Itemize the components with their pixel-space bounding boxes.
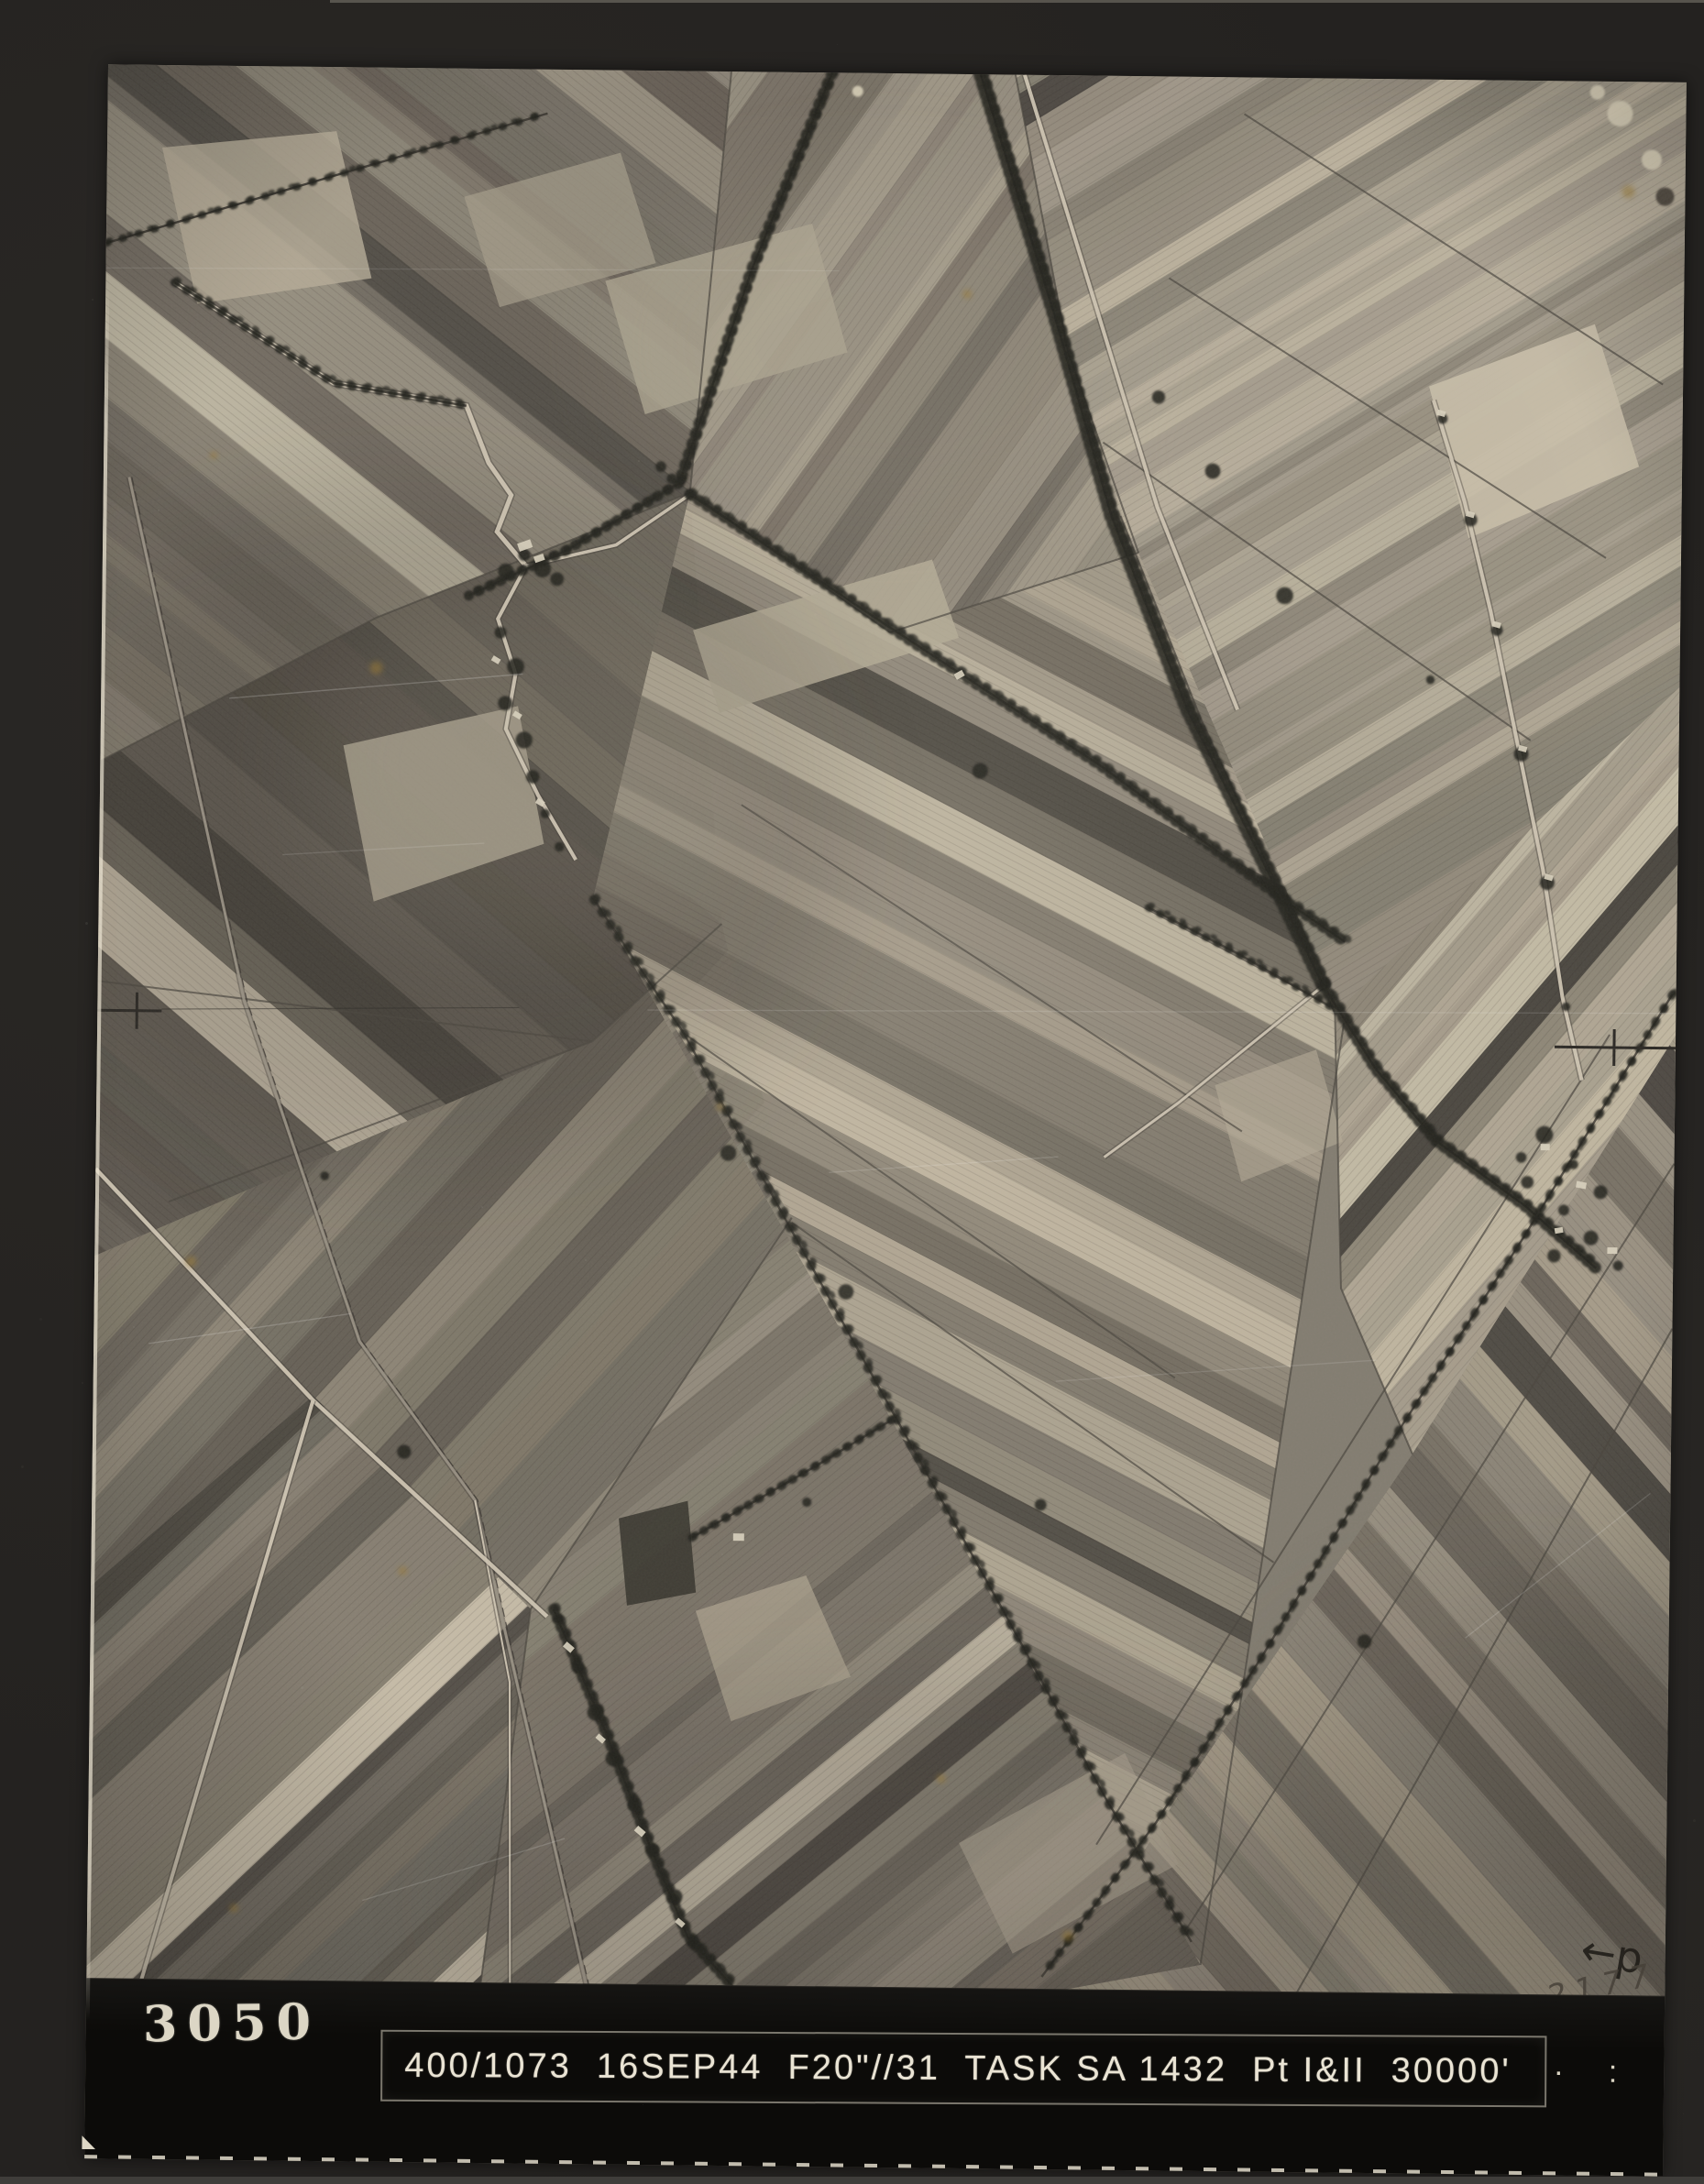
caption-stamp-box: 400/1073 16SEP44 F20"//31 TASK SA 1432 P… [380,2030,1546,2108]
dust-speck [1622,555,1624,557]
dust-speck [1693,1819,1696,1822]
dust-speck [481,1206,483,1208]
dust-speck [929,1192,930,1194]
caption-stamp-marks: · : [1554,2054,1627,2090]
dust-speck [85,922,88,925]
dust-speck [398,1171,401,1174]
dust-speck [837,44,838,45]
dust-speck [360,702,362,704]
caption-strip: 3050 400/1073 16SEP44 F20"//31 TASK SA 1… [84,1978,1665,2177]
scan-background: ←p 2177 3050 400/1073 16SEP44 F20"//31 T… [0,0,1704,2184]
dust-speck [910,1504,913,1507]
photo-serial-number: 3050 [142,1992,321,2054]
caption-stamp-text: 400/1073 16SEP44 F20"//31 TASK SA 1432 P… [404,2046,1512,2091]
scan-top-edge [330,0,1704,3]
dust-speck [82,1382,83,1384]
dust-speck [1138,123,1140,125]
dust-speck [1683,2113,1684,2114]
dust-speck [337,269,339,270]
dust-speck [638,460,640,462]
dust-speck [1479,1723,1480,1725]
dust-speck [814,613,817,616]
scanned-aerial-photo-page: ←p 2177 3050 400/1073 16SEP44 F20"//31 T… [0,0,1704,2184]
dust-speck [1355,219,1357,221]
dust-speck [21,1465,24,1468]
dust-speck [92,299,93,301]
aerial-photo-print: ←p 2177 3050 400/1073 16SEP44 F20"//31 T… [84,64,1687,2176]
dust-speck [244,1621,246,1623]
dust-speck [224,1265,226,1268]
dust-speck [158,510,159,511]
dust-speck [1162,1795,1165,1798]
dust-speck [39,1318,42,1321]
scan-bottom-edge [0,2177,1704,2184]
dust-speck [1237,488,1239,491]
dust-speck [711,1419,712,1420]
aerial-imagery [86,64,1687,1996]
